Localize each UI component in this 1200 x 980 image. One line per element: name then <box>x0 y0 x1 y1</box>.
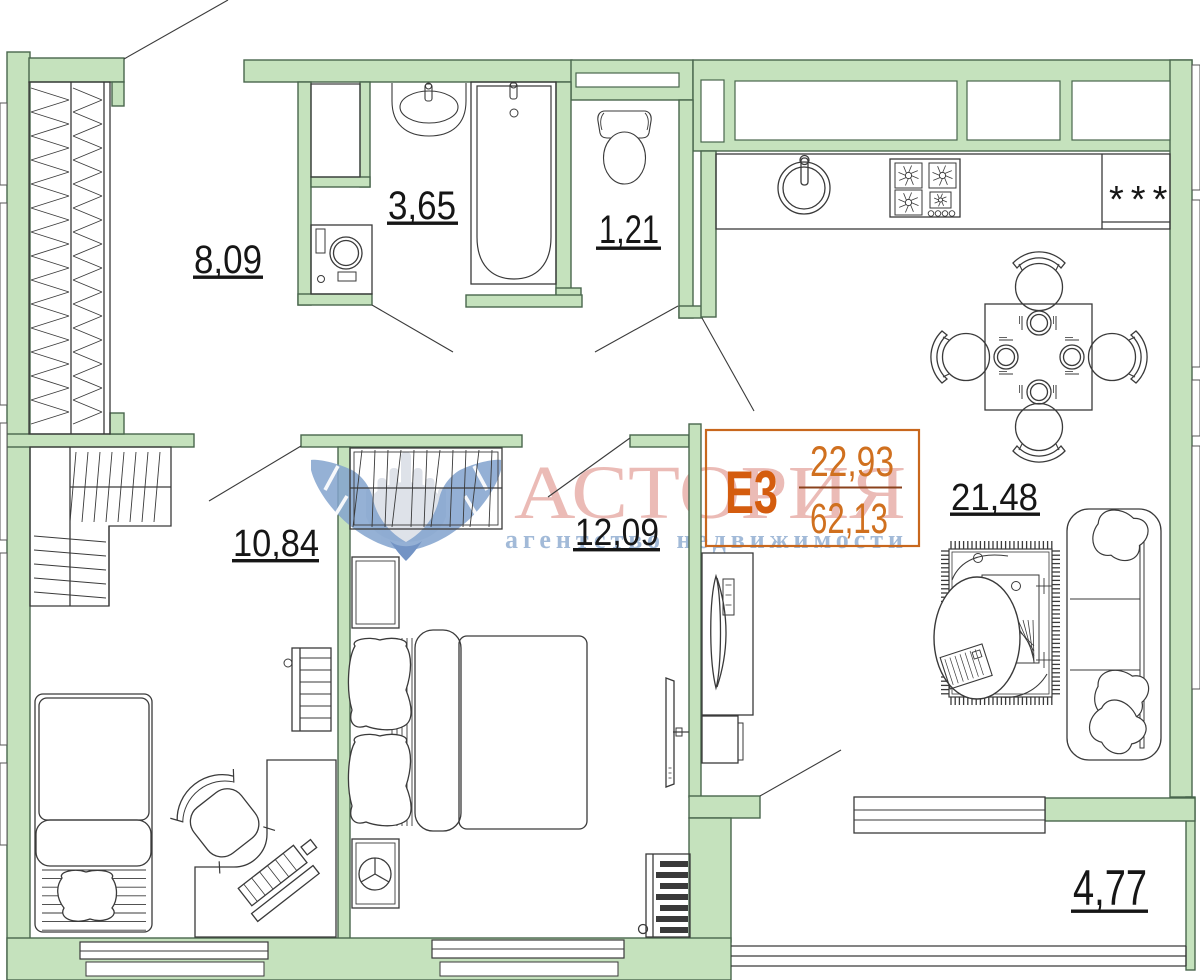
svg-text:1,21: 1,21 <box>599 208 659 252</box>
svg-text:62,13: 62,13 <box>810 495 888 543</box>
svg-text:12,09: 12,09 <box>575 512 659 554</box>
svg-text:3,65: 3,65 <box>388 184 456 228</box>
svg-text:Е3: Е3 <box>725 459 778 526</box>
svg-text:4,77: 4,77 <box>1073 860 1147 916</box>
svg-text:22,93: 22,93 <box>810 438 894 486</box>
svg-text:***: *** <box>1109 179 1174 221</box>
svg-text:8,09: 8,09 <box>194 238 262 282</box>
svg-text:10,84: 10,84 <box>233 523 319 565</box>
